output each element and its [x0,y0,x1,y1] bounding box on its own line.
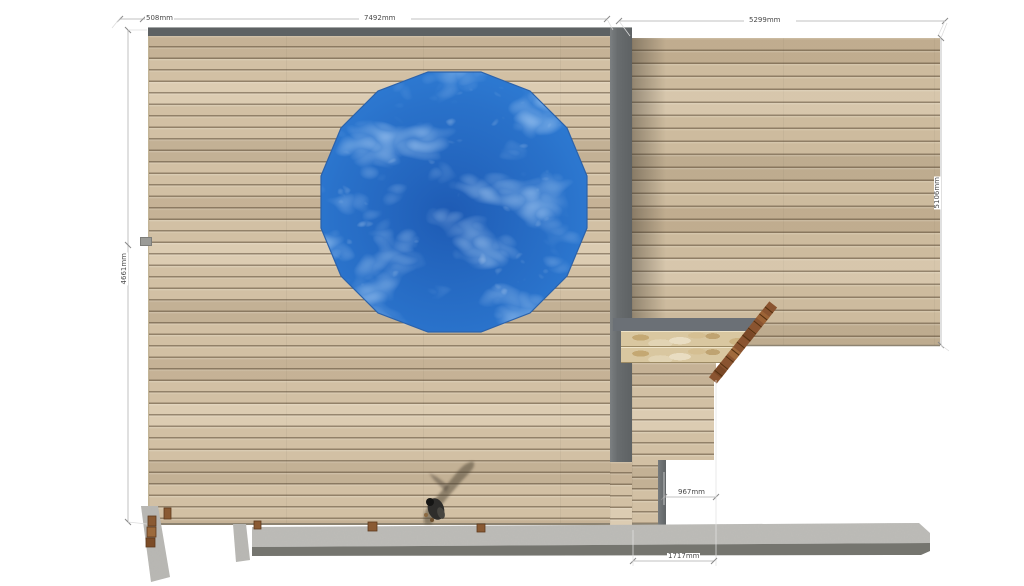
dim-label-right-height: 5106mm [934,176,941,209]
wall-shadow [632,38,666,345]
dim-bottom [630,530,717,566]
concrete-pillar-mid [233,524,250,562]
walkway-wall [658,460,666,525]
walkway-deck [632,363,716,525]
dim-label-top-left-offset: 508mm [145,15,174,22]
dim-label-walkway-width: 967mm [677,489,706,496]
dim-top-left [112,16,146,28]
dim-left [125,27,147,525]
steps-enclosure-wall [613,318,760,331]
deck-edge-notch [140,237,152,246]
lower-deck [632,38,940,345]
retaining-wall [610,28,632,462]
dim-top-right [616,18,948,36]
travertine-step-2 [621,347,752,363]
travertine-step-1 [621,331,752,347]
concrete-wall-face [252,543,930,556]
dim-label-top-main-width: 7492mm [363,15,396,22]
upper-deck [148,36,611,525]
3d-viewport[interactable]: 508mm 7492mm 5299mm 4661mm 5106mm 967mm … [0,0,1024,586]
dim-label-top-right-width: 5299mm [748,17,781,24]
concrete-base-wall [252,523,930,556]
dim-label-bottom-width: 1717mm [667,553,700,560]
dim-label-left-height: 4661mm [121,252,128,285]
upper-deck-lower-corner [610,462,632,525]
